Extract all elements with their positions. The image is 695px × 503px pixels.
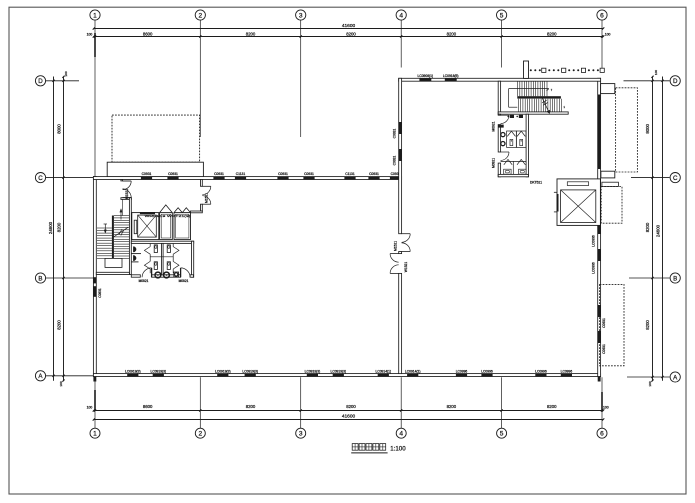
svg-text:8200: 8200 — [56, 320, 61, 330]
svg-text:B: B — [38, 275, 42, 282]
svg-text:LC0919(3): LC0919(3) — [215, 369, 231, 373]
svg-text:5: 5 — [500, 431, 504, 438]
svg-text:LC0919(3): LC0919(3) — [125, 369, 141, 373]
svg-text:LC0919(3): LC0919(3) — [242, 369, 258, 373]
svg-text:C0931: C0931 — [278, 172, 288, 176]
svg-text:41600: 41600 — [342, 414, 356, 420]
svg-text:LC0996: LC0996 — [561, 369, 573, 373]
svg-text:2: 2 — [198, 13, 202, 20]
svg-text:100: 100 — [59, 381, 63, 386]
svg-text:8200: 8200 — [547, 404, 557, 409]
svg-text:6: 6 — [600, 431, 604, 438]
svg-text:8200: 8200 — [246, 404, 256, 409]
svg-text:C0931: C0931 — [214, 172, 224, 176]
svg-text:M1521: M1521 — [204, 193, 208, 203]
svg-text:C: C — [673, 175, 678, 182]
svg-text:LC0996: LC0996 — [592, 235, 596, 247]
svg-text:M1521: M1521 — [394, 241, 398, 251]
svg-text:D: D — [673, 78, 678, 85]
svg-text:LC0996: LC0996 — [456, 369, 468, 373]
svg-text:2: 2 — [198, 431, 202, 438]
svg-text:B: B — [673, 275, 677, 282]
svg-text:LC0996: LC0996 — [535, 369, 547, 373]
svg-text:100: 100 — [64, 71, 68, 76]
svg-text:C0931: C0931 — [168, 172, 178, 176]
svg-text:M1521: M1521 — [125, 189, 129, 199]
svg-text:LC0914(1): LC0914(1) — [405, 369, 421, 373]
svg-text:D: D — [38, 78, 43, 85]
svg-text:8600: 8600 — [143, 404, 153, 409]
svg-text:C: C — [38, 175, 43, 182]
svg-text:8200: 8200 — [246, 32, 256, 37]
svg-text:8200: 8200 — [547, 32, 557, 37]
svg-text:1: 1 — [93, 13, 97, 20]
svg-text:M0921: M0921 — [492, 121, 496, 131]
svg-text:8200: 8200 — [346, 32, 356, 37]
svg-text:1:100: 1:100 — [390, 446, 406, 453]
svg-text:C0931: C0931 — [304, 172, 314, 176]
svg-text:41600: 41600 — [342, 23, 356, 29]
svg-text:C0931: C0931 — [602, 318, 606, 328]
svg-text:C0931: C0931 — [392, 128, 396, 138]
svg-text:8000: 8000 — [645, 124, 650, 134]
svg-text:WRD919 WRT21(3): WRD919 WRT21(3) — [145, 214, 191, 218]
svg-text:1: 1 — [93, 431, 97, 438]
svg-text:8200: 8200 — [346, 404, 356, 409]
svg-text:LC0919(3): LC0919(3) — [331, 369, 347, 373]
svg-text:100: 100 — [87, 405, 93, 409]
svg-text:C1131: C1131 — [345, 172, 355, 176]
svg-text:W1521: W1521 — [404, 262, 408, 273]
svg-text:LC0919(3): LC0919(3) — [151, 369, 167, 373]
svg-text:100: 100 — [605, 33, 611, 37]
svg-text:8600: 8600 — [143, 32, 153, 37]
svg-text:3: 3 — [299, 13, 303, 20]
svg-text:8000: 8000 — [56, 124, 61, 134]
svg-text:C1131: C1131 — [236, 172, 246, 176]
svg-text:4: 4 — [399, 13, 403, 20]
svg-text:M0921: M0921 — [492, 158, 496, 168]
svg-text:LC0996: LC0996 — [481, 369, 493, 373]
svg-text:C0831: C0831 — [98, 288, 102, 298]
svg-text:100: 100 — [648, 381, 652, 386]
svg-text:8200: 8200 — [447, 32, 457, 37]
svg-text:LC0908(1): LC0908(1) — [418, 74, 434, 78]
svg-text:LC0919(3): LC0919(3) — [305, 369, 321, 373]
svg-text:8200: 8200 — [447, 404, 457, 409]
svg-text:4: 4 — [399, 431, 403, 438]
svg-text:C0931: C0931 — [602, 344, 606, 354]
svg-text:C0931: C0931 — [369, 172, 379, 176]
svg-text:8200: 8200 — [645, 320, 650, 330]
svg-text:100: 100 — [603, 405, 609, 409]
svg-text:100: 100 — [87, 33, 93, 37]
svg-text:6: 6 — [600, 13, 604, 20]
svg-text:LC0996: LC0996 — [592, 262, 596, 274]
svg-text:DKT521: DKT521 — [530, 181, 542, 185]
svg-text:M0821: M0821 — [179, 279, 189, 283]
svg-text:3: 3 — [299, 431, 303, 438]
svg-text:C0931: C0931 — [142, 172, 152, 176]
svg-text:M0821: M0821 — [139, 279, 149, 283]
svg-text:24600: 24600 — [655, 224, 660, 237]
svg-text:8200: 8200 — [645, 222, 650, 232]
svg-text:100: 100 — [654, 70, 658, 75]
svg-text:8200: 8200 — [56, 222, 61, 232]
svg-text:LC0918(5): LC0918(5) — [443, 74, 459, 78]
svg-text:24600: 24600 — [48, 221, 53, 234]
svg-text:LC0914(1): LC0914(1) — [376, 369, 392, 373]
svg-text:5: 5 — [500, 13, 504, 20]
svg-text:C0931: C0931 — [392, 155, 396, 165]
